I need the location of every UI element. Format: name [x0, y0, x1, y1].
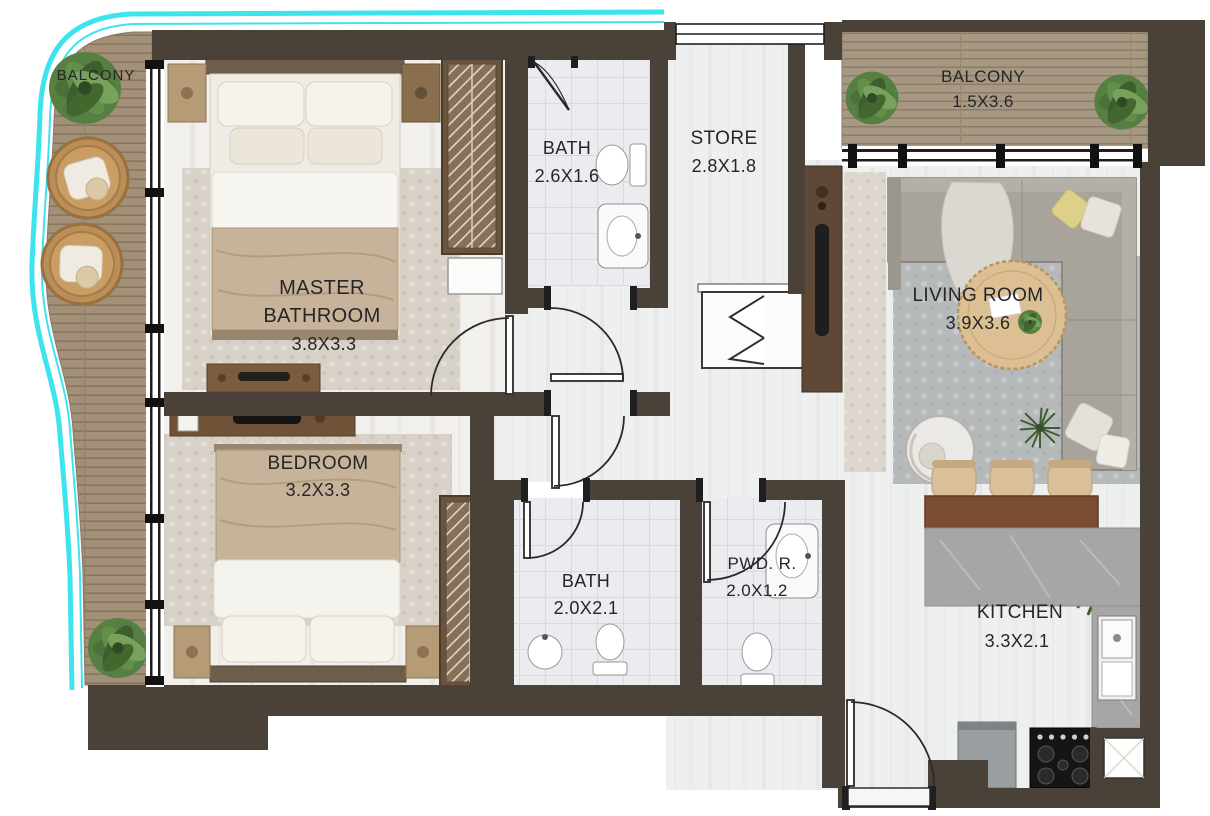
floor-plan-svg: BALCONY MASTER BATHROOM 3.8X3.3 BATH 2.6…: [0, 0, 1210, 816]
label-bath-bottom: BATH: [562, 571, 610, 591]
label-powder-dims: 2.0X1.2: [726, 581, 787, 600]
master-wardrobe: [442, 58, 502, 254]
label-living-dims: 3.9X3.6: [946, 313, 1011, 333]
master-nightstand-right: [402, 64, 440, 122]
kitchen-island: [925, 460, 1098, 528]
label-master-line1: MASTER: [279, 277, 365, 299]
kitchen-sink: [1098, 616, 1136, 700]
powder-room-toilet: [741, 633, 774, 687]
label-bedroom: BEDROOM: [268, 453, 369, 474]
master-bench-box: [448, 258, 502, 294]
bedroom-nightstand-right: [406, 626, 440, 678]
balcony-chair-1: [48, 138, 128, 218]
bath-top-toilet: [596, 144, 646, 186]
label-bath-top-dims: 2.6X1.6: [535, 166, 600, 186]
label-kitchen-dims: 3.3X2.1: [985, 631, 1050, 651]
master-dresser: [207, 364, 320, 392]
label-balcony-left: BALCONY: [57, 67, 136, 84]
label-store: STORE: [690, 128, 757, 149]
label-bedroom-dims: 3.2X3.3: [286, 480, 351, 500]
bath-top-vanity: [598, 204, 648, 268]
label-living: LIVING ROOM: [912, 285, 1043, 306]
label-balcony-top: BALCONY: [941, 67, 1025, 86]
bar-stools: [932, 460, 1092, 498]
label-balcony-top-dims: 1.5X3.6: [952, 92, 1013, 111]
label-master-line2: BATHROOM: [263, 305, 380, 327]
label-kitchen: KITCHEN: [977, 602, 1063, 623]
label-bath-bottom-dims: 2.0X2.1: [554, 598, 619, 618]
store-window: [676, 24, 824, 44]
left-window-wall: [145, 60, 164, 687]
stove: [1030, 728, 1096, 788]
bath-bottom-toilet: [593, 624, 627, 675]
tv-console: [802, 166, 842, 392]
living-balcony-window: [842, 144, 1142, 168]
label-powder: PWD. R.: [728, 554, 797, 573]
label-store-dims: 2.8X1.8: [692, 156, 757, 176]
service-shaft: [1104, 738, 1144, 778]
left-balcony-deck: [46, 32, 152, 685]
floor-plan-page: BALCONY MASTER BATHROOM 3.8X3.3 BATH 2.6…: [0, 0, 1210, 816]
master-nightstand-left: [168, 64, 206, 122]
bath-bottom-sink: [528, 634, 562, 669]
label-bath-top: BATH: [543, 138, 591, 158]
bedroom-nightstand-left: [174, 626, 210, 678]
label-master-dims: 3.8X3.3: [292, 334, 357, 354]
